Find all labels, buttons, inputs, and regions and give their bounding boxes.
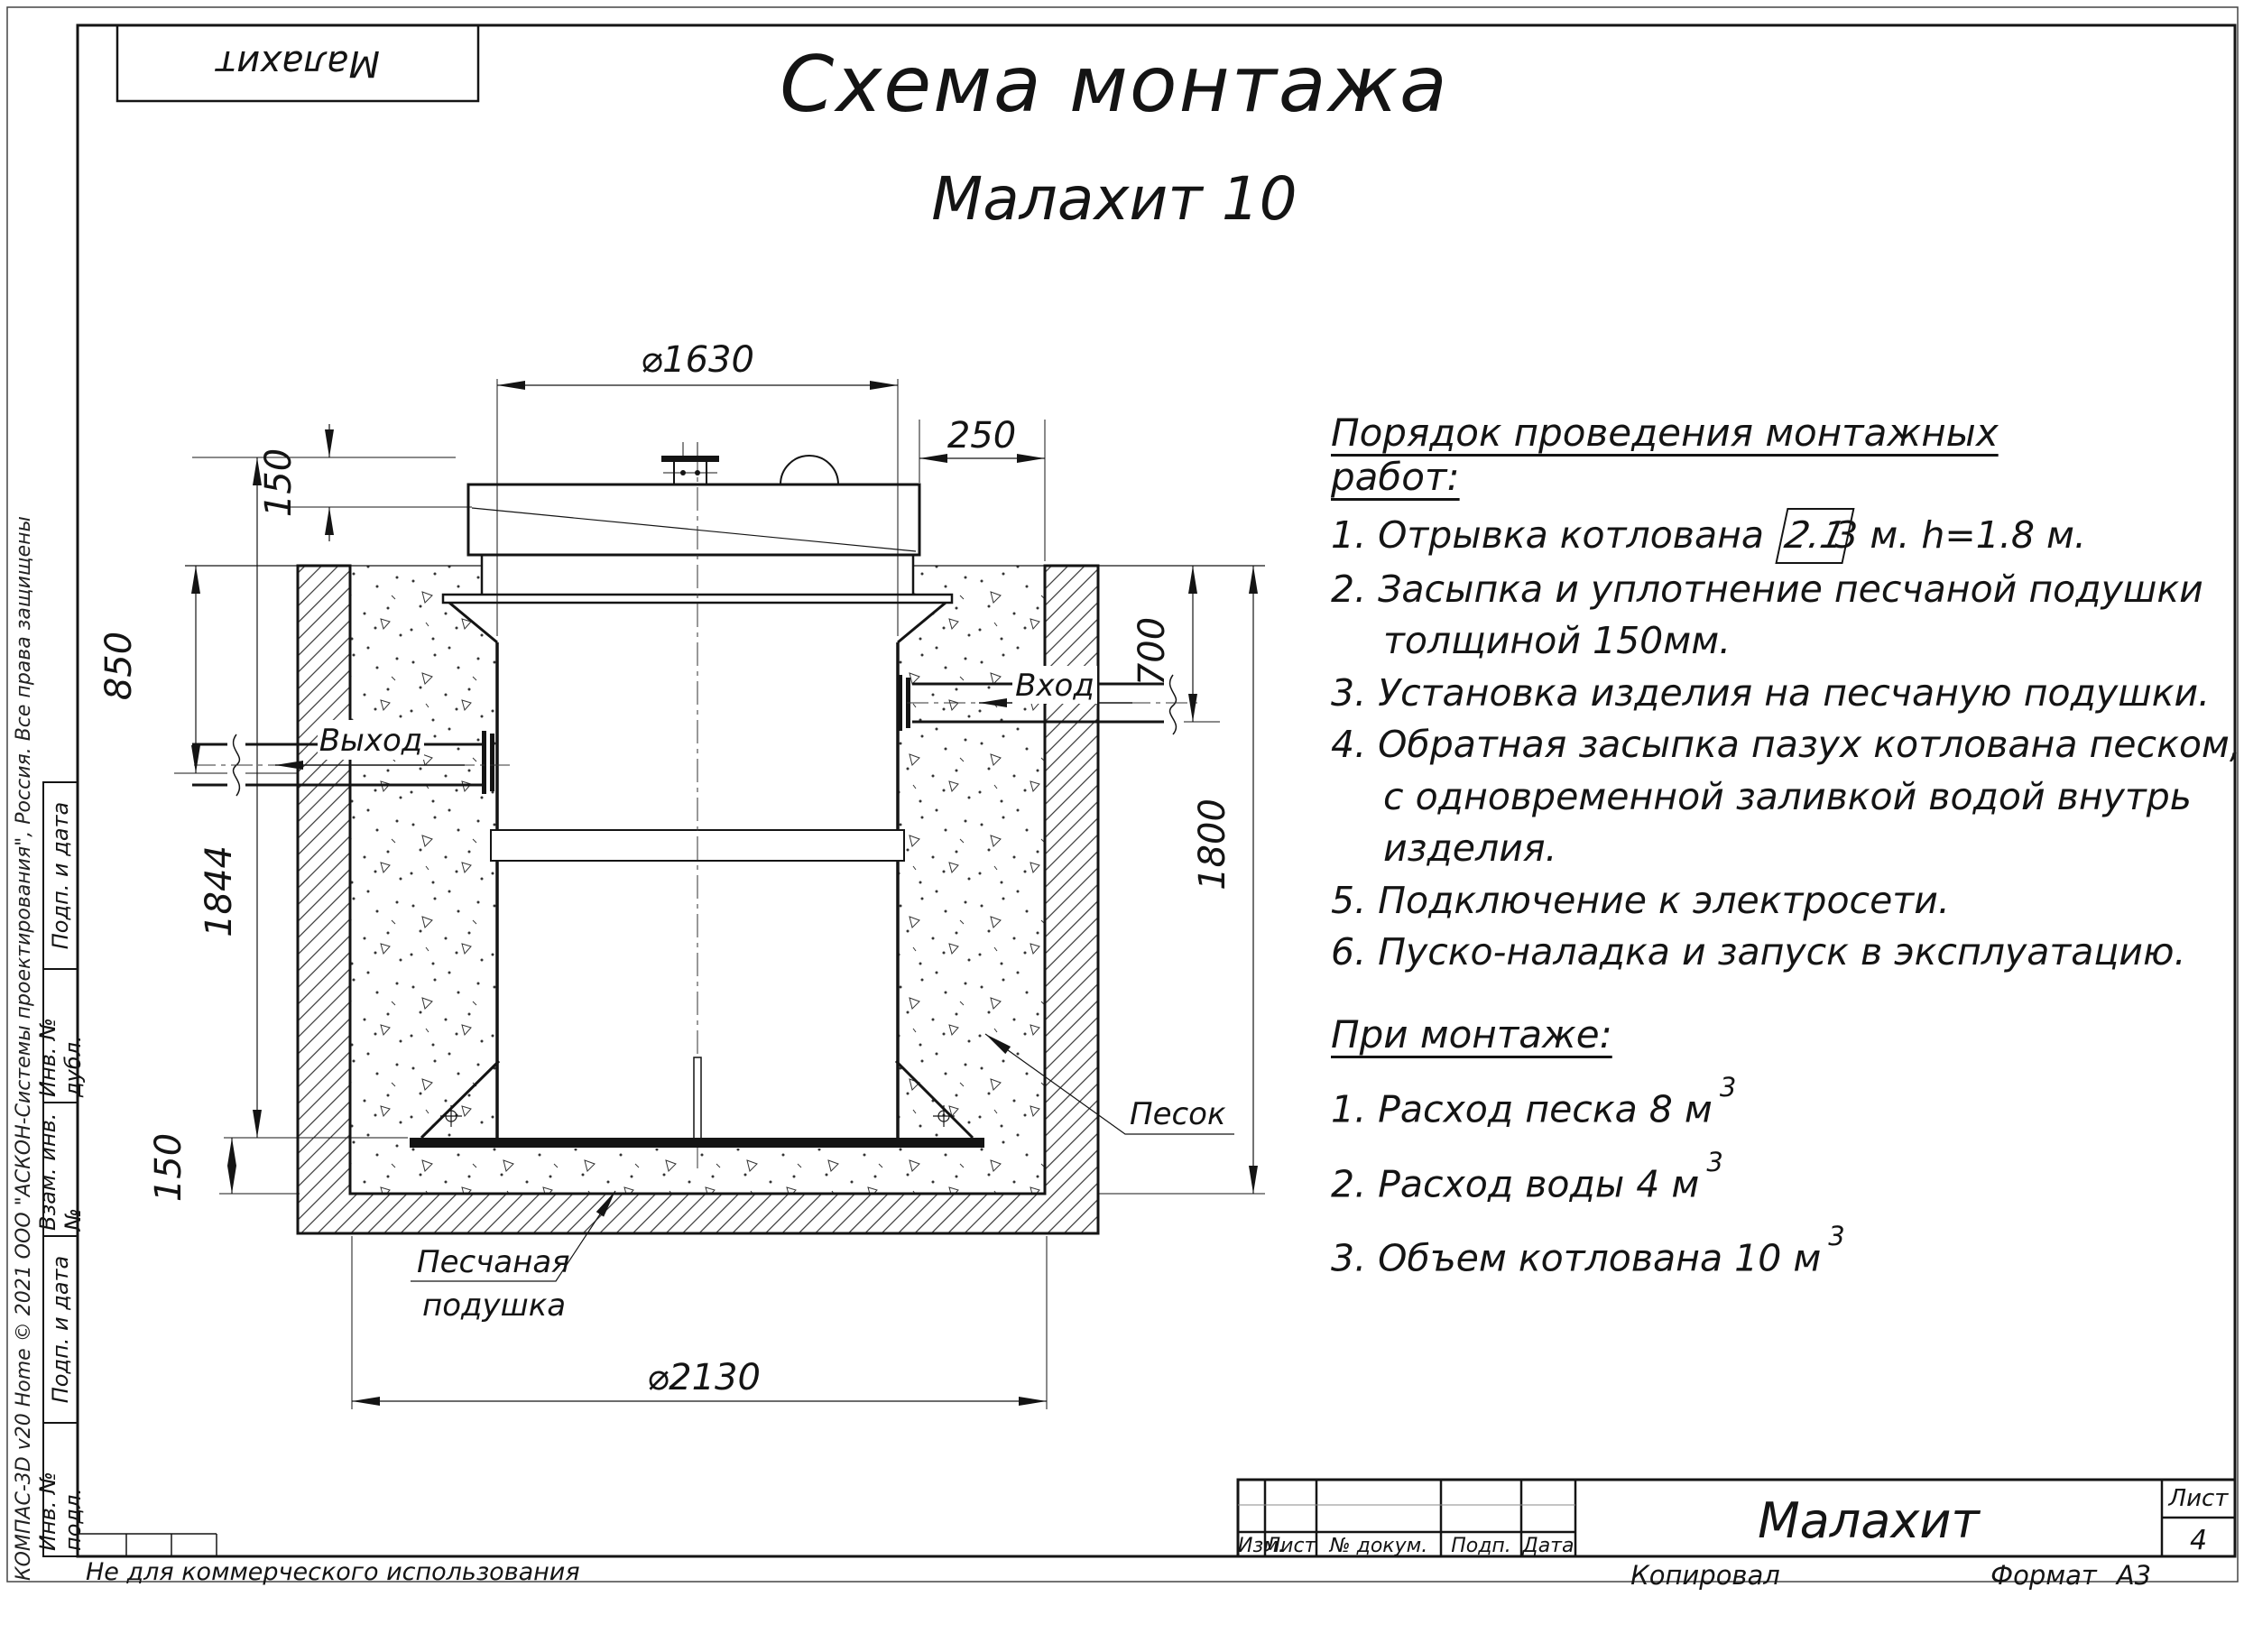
instruction-item: 4. Обратная засыпка пазух котлована песк… <box>1331 719 2134 771</box>
cad-copyright: КОМПАС-3D v20 Home © 2021 ООО "АСКОН-Сис… <box>13 503 35 1581</box>
margin-box-inv-podl: Инв. № подл. <box>47 1428 74 1551</box>
frame-corner-cells <box>78 1534 217 1556</box>
notes-heading: При монтаже: <box>1331 1012 2134 1057</box>
dim-850: 850 <box>98 632 140 700</box>
note-text: 1. Расход песка 8 м <box>1331 1088 1713 1131</box>
page-title: Схема монтажа <box>577 40 1651 130</box>
instruction-item-cont: изделия. <box>1331 823 2134 875</box>
page-subtitle: Малахит 10 <box>577 164 1651 234</box>
note-item: 2. Расход воды 4 м3 <box>1331 1159 2134 1206</box>
dim-1844: 1844 <box>199 845 240 937</box>
tb-copied: Копировал <box>1615 1560 1796 1591</box>
dim-700: 700 <box>1131 617 1173 686</box>
tb-format-value: А3 <box>2107 1560 2161 1591</box>
dim-1800: 1800 <box>1192 798 1233 891</box>
outlet-label: Выход <box>319 723 423 759</box>
tb-sheet-label: Лист <box>2162 1485 2235 1512</box>
footer-note: Не для коммерческого использования <box>86 1558 580 1586</box>
note-sup: 3 <box>1828 1221 1844 1251</box>
dim-2130: ⌀2130 <box>647 1357 761 1398</box>
vent-fitting <box>661 442 719 485</box>
note-text: 2. Расход воды 4 м <box>1331 1162 1699 1205</box>
sand-label: Песок <box>1130 1096 1226 1132</box>
tb-col-podp: Подп. <box>1441 1535 1521 1557</box>
cushion-label-1: Песчаная <box>417 1244 570 1280</box>
dim-250: 250 <box>947 415 1016 457</box>
instructions-heading: Порядок проведения монтажных работ: <box>1331 411 2134 499</box>
tb-col-data: Дата <box>1521 1535 1575 1557</box>
installation-notes: При монтаже: 1. Расход песка 8 м3 2. Рас… <box>1331 1012 2134 1280</box>
margin-box-inv-dubl: Инв. № дубл. <box>47 974 74 1097</box>
inlet-label: Вход <box>1015 668 1094 704</box>
installation-instructions: Порядок проведения монтажных работ: 1. О… <box>1331 411 2134 979</box>
dim-150-bottom: 150 <box>148 1133 189 1202</box>
margin-box-podp-data-2: Подп. и дата <box>47 1241 74 1417</box>
cushion-label-2: подушка <box>422 1287 566 1324</box>
instruction-item-cont: толщиной 150мм. <box>1331 615 2134 668</box>
margin-box-podp-data-1: Подп. и дата <box>47 788 74 964</box>
tb-sheet-number: 4 <box>2162 1525 2235 1556</box>
tb-doc-name: Малахит <box>1575 1492 2162 1549</box>
dim-1630: ⌀1630 <box>641 339 754 381</box>
instruction-item: 5. Подключение к электросети. <box>1331 875 2134 928</box>
item1-pit-size: 2.1 <box>1776 508 1855 564</box>
instruction-item: 6. Пуско-наладка и запуск в эксплуатацию… <box>1331 927 2134 979</box>
margin-box-vzam-inv: Взам. инв. № <box>47 1108 74 1231</box>
drawing-sheet: ⌀1630 250 150 850 1844 150 700 1800 ⌀213… <box>0 0 2244 1652</box>
tb-col-list: Лист <box>1265 1535 1316 1557</box>
note-item: 1. Расход песка 8 м3 <box>1331 1084 2134 1131</box>
item1-post: 3 м. h=1.8 м. <box>1834 513 2086 557</box>
tb-format-label: Формат <box>1985 1560 2102 1591</box>
instruction-item: 3. Установка изделия на песчаную подушки… <box>1331 668 2134 720</box>
item1-pre: 1. Отрывка котлована <box>1331 513 1776 557</box>
instruction-item: 2. Засыпка и уплотнение песчаной подушки <box>1331 564 2134 616</box>
note-text: 3. Объем котлована 10 м <box>1331 1237 1821 1280</box>
dim-150-top: 150 <box>258 448 300 517</box>
note-sup: 3 <box>1720 1072 1736 1103</box>
lid-handle <box>780 456 838 485</box>
tb-col-doc: № докум. <box>1316 1535 1441 1557</box>
instruction-item: 1. Отрывка котлована 2.13 м. h=1.8 м. <box>1331 508 2134 564</box>
note-item: 3. Объем котлована 10 м3 <box>1331 1233 2134 1280</box>
tank-bottom-plate <box>410 1138 984 1148</box>
tank-lid <box>468 485 919 555</box>
instruction-item-cont: с одновременной заливкой водой внутрь <box>1331 771 2134 824</box>
note-sup: 3 <box>1706 1147 1722 1177</box>
tb-col-izm: Изм. <box>1238 1535 1265 1557</box>
folded-stamp-text: Малахит <box>117 25 478 101</box>
